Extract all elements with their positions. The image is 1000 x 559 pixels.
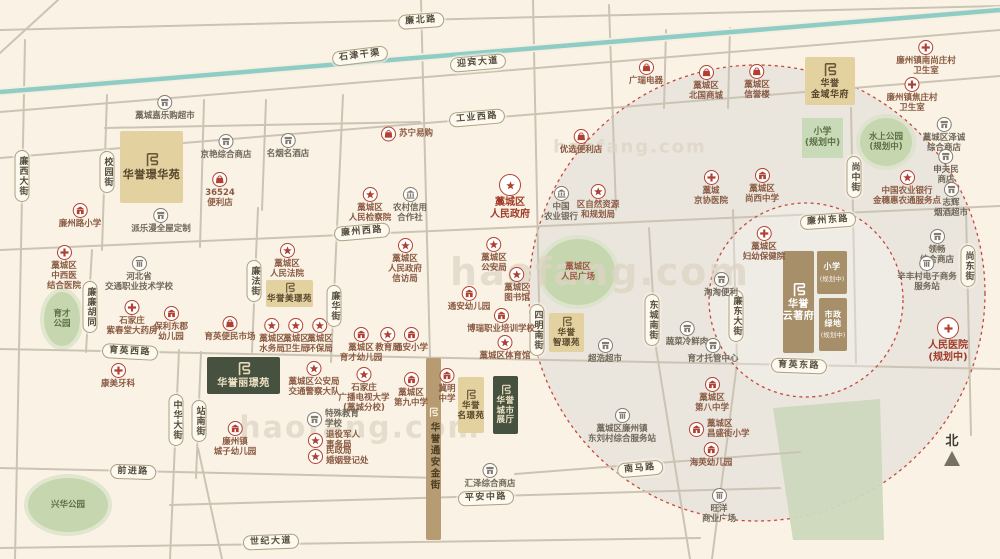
- poi-bag-icon: [698, 65, 713, 80]
- road-label: 站南街: [192, 400, 207, 442]
- poi-star-icon: [306, 361, 321, 376]
- poi-shop-icon: [679, 321, 694, 336]
- road-label: 廉东大街: [729, 290, 744, 342]
- poi-marker: 农村信用 合作社: [393, 187, 427, 223]
- poi-label: 海英幼儿园: [690, 458, 733, 468]
- road-label: 廉北路: [398, 12, 444, 30]
- poi-marker: 名烟名酒店: [267, 133, 310, 159]
- huayu-logo-icon: [561, 316, 573, 328]
- road-line: [170, 350, 179, 559]
- poi-marker: 藁城区 信誉楼: [744, 64, 770, 100]
- poi-label: 特殊教育 学校: [325, 409, 359, 429]
- poi-shop-icon: [153, 208, 168, 223]
- poi-label: 藁城区 北国商城: [689, 81, 723, 101]
- poi-marker: 中国 农业银行: [544, 186, 578, 222]
- huayu-logo-icon: [428, 407, 439, 418]
- poi-label: 廉州镇南尚庄村 卫生室: [896, 56, 956, 76]
- poi-label: 人民医院 (规划中): [928, 340, 968, 364]
- poi-marker: 藁城区 人民政府: [490, 174, 530, 221]
- poi-school-icon: [704, 377, 719, 392]
- poi-marker: 藁城区廉州镇 东刘村综合服务站: [588, 408, 656, 444]
- poi-label: 藁城区 第九中学: [394, 388, 428, 408]
- poi-info-icon: [614, 408, 629, 423]
- poi-marker: 藁城区体育馆: [479, 335, 530, 361]
- poi-cross-icon: [904, 77, 919, 92]
- road-label: 平安中路: [458, 490, 515, 507]
- poi-label: 中国农业银行 金穗惠农通服务点: [873, 186, 941, 206]
- huayu-logo-icon: [465, 389, 477, 401]
- poi-marker: 藁城区 中西医 结合医院: [47, 245, 81, 291]
- poi-shop-icon: [597, 338, 612, 353]
- road-label: 廉廉胡同: [83, 281, 98, 333]
- poi-shop-icon: [482, 463, 497, 478]
- poi-label: 藁城区 中西医 结合医院: [47, 261, 81, 291]
- huayu-logo-icon: [284, 282, 296, 294]
- poi-label: 超浩超市: [588, 354, 622, 364]
- poi-label: 藁城区 图书馆: [504, 283, 530, 303]
- project-block: 华誉 名璟苑: [458, 377, 484, 433]
- poi-marker: 特殊教育 学校: [307, 409, 359, 429]
- poi-info-icon: [919, 256, 934, 271]
- poi-star-icon: [288, 318, 303, 333]
- poi-label: 藁城区 人民法院: [270, 259, 304, 279]
- poi-school-icon: [353, 327, 368, 342]
- poi-star-icon: [362, 187, 377, 202]
- poi-cross-icon: [124, 300, 139, 315]
- road-line: [200, 100, 204, 247]
- poi-star-icon: [499, 174, 521, 196]
- project-block: 华誉 城市 展厅: [493, 376, 518, 434]
- poi-label: 藁城区 水务局: [259, 334, 285, 354]
- poi-info-icon: [131, 256, 146, 271]
- poi-marker: 藁城区 昌盛街小学: [689, 419, 750, 439]
- poi-label: 旺洋 商业广场: [702, 504, 736, 524]
- huayu-logo-icon: [144, 152, 160, 168]
- poi-shop-icon: [157, 95, 172, 110]
- poi-label: 育英便民市场: [204, 332, 255, 342]
- poi-label: 通安小学: [394, 343, 428, 353]
- poi-marker: 汇泽综合商店: [464, 463, 515, 489]
- poi-label: 廉州路小学: [59, 219, 102, 229]
- poi-shop-icon: [938, 149, 953, 164]
- poi-marker: 超浩超市: [588, 338, 622, 364]
- poi-bag-icon: [381, 127, 396, 142]
- huayu-logo-icon: [236, 361, 252, 377]
- poi-label: 保利东郡 幼儿园: [154, 322, 188, 342]
- poi-label: 冀明 中学: [438, 384, 455, 404]
- poi-marker: 藁城区公安局 交通警察大队: [288, 361, 339, 397]
- poi-marker: 博瑞职业培训学校: [467, 308, 535, 334]
- north-arrow-icon: [944, 451, 960, 466]
- poi-marker: 藁城区 公安局: [481, 237, 507, 273]
- project-name: 华誉 智璟苑: [553, 329, 580, 349]
- poi-bag-icon: [222, 316, 237, 331]
- poi-label: 藁城区廉州镇 东刘村综合服务站: [588, 424, 656, 444]
- poi-marker: 藁城区 第九中学: [394, 372, 428, 408]
- road-label: 廉西大街: [15, 150, 30, 202]
- road-label: 东城南街: [645, 294, 660, 346]
- poi-label: 河北省 交通职业技术学校: [105, 272, 173, 292]
- poi-school-icon: [461, 286, 476, 301]
- poi-bank-icon: [402, 187, 417, 202]
- poi-marker: 广瑞电器: [629, 60, 663, 86]
- poi-marker: 区自然资源 和规划局: [577, 184, 620, 220]
- road-label: 尚中街: [847, 156, 862, 198]
- poi-shop-icon: [929, 229, 944, 244]
- road-label: 世纪大道: [243, 534, 300, 551]
- poi-label: 藁城 京协医院: [694, 186, 728, 206]
- poi-info-icon: [711, 488, 726, 503]
- poi-school-icon: [72, 203, 87, 218]
- poi-label: 民政局 婚姻登记处: [326, 446, 369, 466]
- poi-marker: 中国农业银行 金穗惠农通服务点: [873, 170, 941, 206]
- poi-marker: 藁城嘉乐购超市: [135, 95, 195, 121]
- poi-star-icon: [509, 267, 524, 282]
- project-name: 市政 绿地: [825, 310, 842, 328]
- north-indicator: 北: [944, 430, 960, 466]
- poi-marker: 藁城区 人民检察院: [349, 187, 392, 223]
- park-label: 水上公园 (规划中): [869, 132, 903, 152]
- poi-label: 藁城区 环保局: [307, 334, 333, 354]
- poi-label: 苏宁易购: [399, 129, 433, 139]
- poi-school-icon: [227, 421, 242, 436]
- poi-marker: 藁城区 第八中学: [695, 377, 729, 413]
- north-label: 北: [945, 430, 958, 449]
- poi-marker: 廉州路小学: [59, 203, 102, 229]
- huayu-logo-icon: [822, 62, 838, 78]
- road-label: 尚东街: [961, 245, 976, 287]
- poi-label: 京艳综合商店: [200, 150, 251, 160]
- poi-label: 廉州镇焦庄村 卫生室: [886, 93, 937, 113]
- huayu-logo-icon: [791, 282, 807, 298]
- poi-marker: 石家庄 紫春堂大药房: [106, 300, 157, 336]
- area-map[interactable]: haofang.comhaofang.comhaofang.com育才 公园兴华…: [0, 0, 1000, 559]
- poi-star-icon: [279, 243, 294, 258]
- poi-label: 藁城区 人民政府 信访局: [388, 254, 422, 284]
- poi-label: 藁城区 人民检察院: [349, 203, 392, 223]
- poi-label: 36524 便利店: [205, 188, 235, 208]
- poi-star-icon: [356, 367, 371, 382]
- road-line: [0, 538, 700, 548]
- poi-bag-icon: [749, 64, 764, 79]
- poi-marker: 旺洋 商业广场: [702, 488, 736, 524]
- poi-label: 育才托管中心: [687, 354, 738, 364]
- poi-label: 博瑞职业培训学校: [467, 324, 535, 334]
- poi-shop-icon: [705, 338, 720, 353]
- poi-shop-icon: [307, 412, 322, 427]
- poi-label: 农村信用 合作社: [393, 203, 427, 223]
- poi-marker: 民政局 婚姻登记处: [308, 446, 369, 466]
- poi-school-icon: [689, 422, 704, 437]
- project-block: 华誉美璟苑: [266, 280, 313, 307]
- poi-marker: 藁城区 卫生局: [283, 318, 309, 354]
- poi-label: 藁城嘉乐购超市: [135, 111, 195, 121]
- poi-label: 名烟名酒店: [267, 149, 310, 159]
- poi-bag-icon: [573, 129, 588, 144]
- poi-marker: 廉州镇南尚庄村 卫生室: [896, 40, 956, 76]
- poi-marker: 石家庄 广播电视大学 (藁城分校): [338, 367, 389, 413]
- poi-star-icon: [590, 184, 605, 199]
- poi-label: 康美牙科: [101, 379, 135, 389]
- poi-shop-icon: [936, 117, 951, 132]
- poi-star-icon: [308, 449, 323, 464]
- road-label: 前进路: [110, 464, 156, 481]
- project-name: 华誉 城市 展厅: [496, 397, 514, 426]
- poi-shop-icon: [713, 272, 728, 287]
- road-label: 中华大街: [169, 394, 184, 446]
- project-name: 华誉美璟苑: [267, 295, 312, 305]
- poi-marker: 苏宁易购: [381, 127, 433, 142]
- poi-marker: 藁城区 环保局: [307, 318, 333, 354]
- project-block: 华誉璟华苑: [120, 131, 183, 203]
- road-line: [262, 100, 266, 210]
- poi-school-icon: [403, 327, 418, 342]
- poi-marker: 藁城区 北国商城: [689, 65, 723, 101]
- park-label: 育才 公园: [53, 309, 70, 329]
- poi-label: 藁城区 妇幼保健院: [743, 242, 786, 262]
- poi-label: 辛丰村电子商务 服务站: [897, 272, 957, 292]
- poi-marker: 育才托管中心: [687, 338, 738, 364]
- poi-school-icon: [493, 308, 508, 323]
- planned-school-label: 小学 (规划中): [805, 127, 840, 149]
- poi-marker: 育英便民市场: [204, 316, 255, 342]
- poi-marker: 辛丰村电子商务 服务站: [897, 256, 957, 292]
- poi-marker: 廉州镇焦庄村 卫生室: [886, 77, 937, 113]
- poi-label: 汇泽综合商店: [464, 479, 515, 489]
- poi-cross-icon: [56, 245, 71, 260]
- poi-label: 藁城区 卫生局: [283, 334, 309, 354]
- poi-marker: 藁城区 妇幼保健院: [743, 226, 786, 262]
- project-block: 小学(规划中): [817, 251, 847, 294]
- poi-shop-icon: [218, 134, 233, 149]
- poi-bank-icon: [553, 186, 568, 201]
- poi-school-icon: [403, 372, 418, 387]
- project-block: 市政 绿地(规划中): [819, 298, 847, 351]
- poi-label: 藁城区 尚西中学: [745, 184, 779, 204]
- poi-star-icon: [264, 318, 279, 333]
- poi-star-icon: [312, 318, 327, 333]
- poi-marker: 京艳综合商店: [200, 134, 251, 160]
- huayu-logo-icon: [500, 384, 512, 396]
- road-label: 廉法街: [247, 260, 262, 302]
- park-label: 兴华公园: [51, 500, 85, 510]
- poi-label: 广瑞电器: [629, 76, 663, 86]
- poi-marker: 海英幼儿园: [690, 442, 733, 468]
- project-street-name: 华誉通安金街: [427, 422, 441, 491]
- poi-marker: 派乐漫全屋定制: [131, 208, 191, 234]
- poi-marker: 36524 便利店: [205, 172, 235, 208]
- poi-label: 区自然资源 和规划局: [577, 200, 620, 220]
- project-block: 华誉 智璟苑: [549, 313, 584, 352]
- road-label: 校园街: [100, 151, 115, 193]
- poi-cross-icon: [110, 363, 125, 378]
- project-name: 华誉璟华苑: [123, 169, 181, 182]
- poi-marker: 藁城区泽诚 综合商店: [923, 117, 966, 153]
- project-name: 小学: [824, 262, 841, 271]
- poi-label: 中国 农业银行: [544, 202, 578, 222]
- poi-marker: 廉州镇 城子幼儿园: [214, 421, 257, 457]
- poi-school-icon: [703, 442, 718, 457]
- poi-marker: 藁城区 尚西中学: [745, 168, 779, 204]
- poi-school-icon: [439, 368, 454, 383]
- poi-cross-icon: [756, 226, 771, 241]
- poi-label: 淘淘便利: [704, 288, 738, 298]
- poi-marker: 冀明 中学: [438, 368, 455, 404]
- road-label: 育英西路: [102, 343, 159, 361]
- poi-school-icon: [754, 168, 769, 183]
- project-block: 华誉 云著府: [783, 251, 814, 353]
- park-label: 藁城区 人民广场: [561, 262, 595, 282]
- project-subnote: (规划中): [820, 273, 845, 283]
- poi-marker: 优选便利店: [560, 129, 603, 155]
- poi-shop-icon: [280, 133, 295, 148]
- poi-marker: 通安小学: [394, 327, 428, 353]
- project-block: 华誉丽璟苑: [207, 357, 280, 394]
- poi-label: 藁城区 人民政府: [490, 197, 530, 221]
- project-name: 华誉 名璟苑: [458, 402, 485, 422]
- project-block: 华誉 金域华府: [805, 57, 855, 105]
- project-name: 华誉 云著府: [783, 299, 815, 322]
- poi-label: 优选便利店: [560, 145, 603, 155]
- project-name: 华誉丽璟苑: [217, 378, 270, 390]
- poi-shop-icon: [943, 182, 958, 197]
- poi-label: 藁城区 公安局: [481, 253, 507, 273]
- poi-marker: 藁城 京协医院: [694, 170, 728, 206]
- poi-star-icon: [497, 335, 512, 350]
- poi-label: 石家庄 紫春堂大药房: [106, 316, 157, 336]
- poi-star-icon: [397, 238, 412, 253]
- poi-star-icon: [899, 170, 914, 185]
- poi-label: 藁城区公安局 交通警察大队: [288, 377, 339, 397]
- poi-star-icon: [486, 237, 501, 252]
- poi-marker: 淘淘便利: [704, 272, 738, 298]
- project-subnote: (规划中): [821, 329, 846, 339]
- poi-label: 藁城区 信誉楼: [744, 80, 770, 100]
- road-line: [0, 6, 1000, 30]
- poi-label: 廉州镇 城子幼儿园: [214, 437, 257, 457]
- poi-cross-icon: [937, 317, 959, 339]
- road-line: [0, 0, 58, 53]
- poi-bag-icon: [212, 172, 227, 187]
- poi-label: 藁城区 昌盛街小学: [707, 419, 750, 439]
- poi-marker: 保利东郡 幼儿园: [154, 306, 188, 342]
- poi-marker: 藁城区 水务局: [259, 318, 285, 354]
- poi-cross-icon: [703, 170, 718, 185]
- poi-school-icon: [163, 306, 178, 321]
- poi-marker: 人民医院 (规划中): [928, 317, 968, 364]
- poi-label: 派乐漫全屋定制: [131, 224, 191, 234]
- road-label: 育英东路: [771, 358, 828, 375]
- poi-cross-icon: [918, 40, 933, 55]
- road-line: [15, 40, 25, 559]
- poi-bag-icon: [638, 60, 653, 75]
- poi-label: 藁城区体育馆: [479, 351, 530, 361]
- poi-marker: 河北省 交通职业技术学校: [105, 256, 173, 292]
- project-name: 华誉 金域华府: [811, 79, 849, 100]
- poi-label: 藁城区 第八中学: [695, 393, 729, 413]
- poi-marker: 藁城区 人民政府 信访局: [388, 238, 422, 284]
- poi-marker: 藁城区 人民法院: [270, 243, 304, 279]
- poi-marker: 康美牙科: [101, 363, 135, 389]
- poi-marker: 藁城区 图书馆: [504, 267, 530, 303]
